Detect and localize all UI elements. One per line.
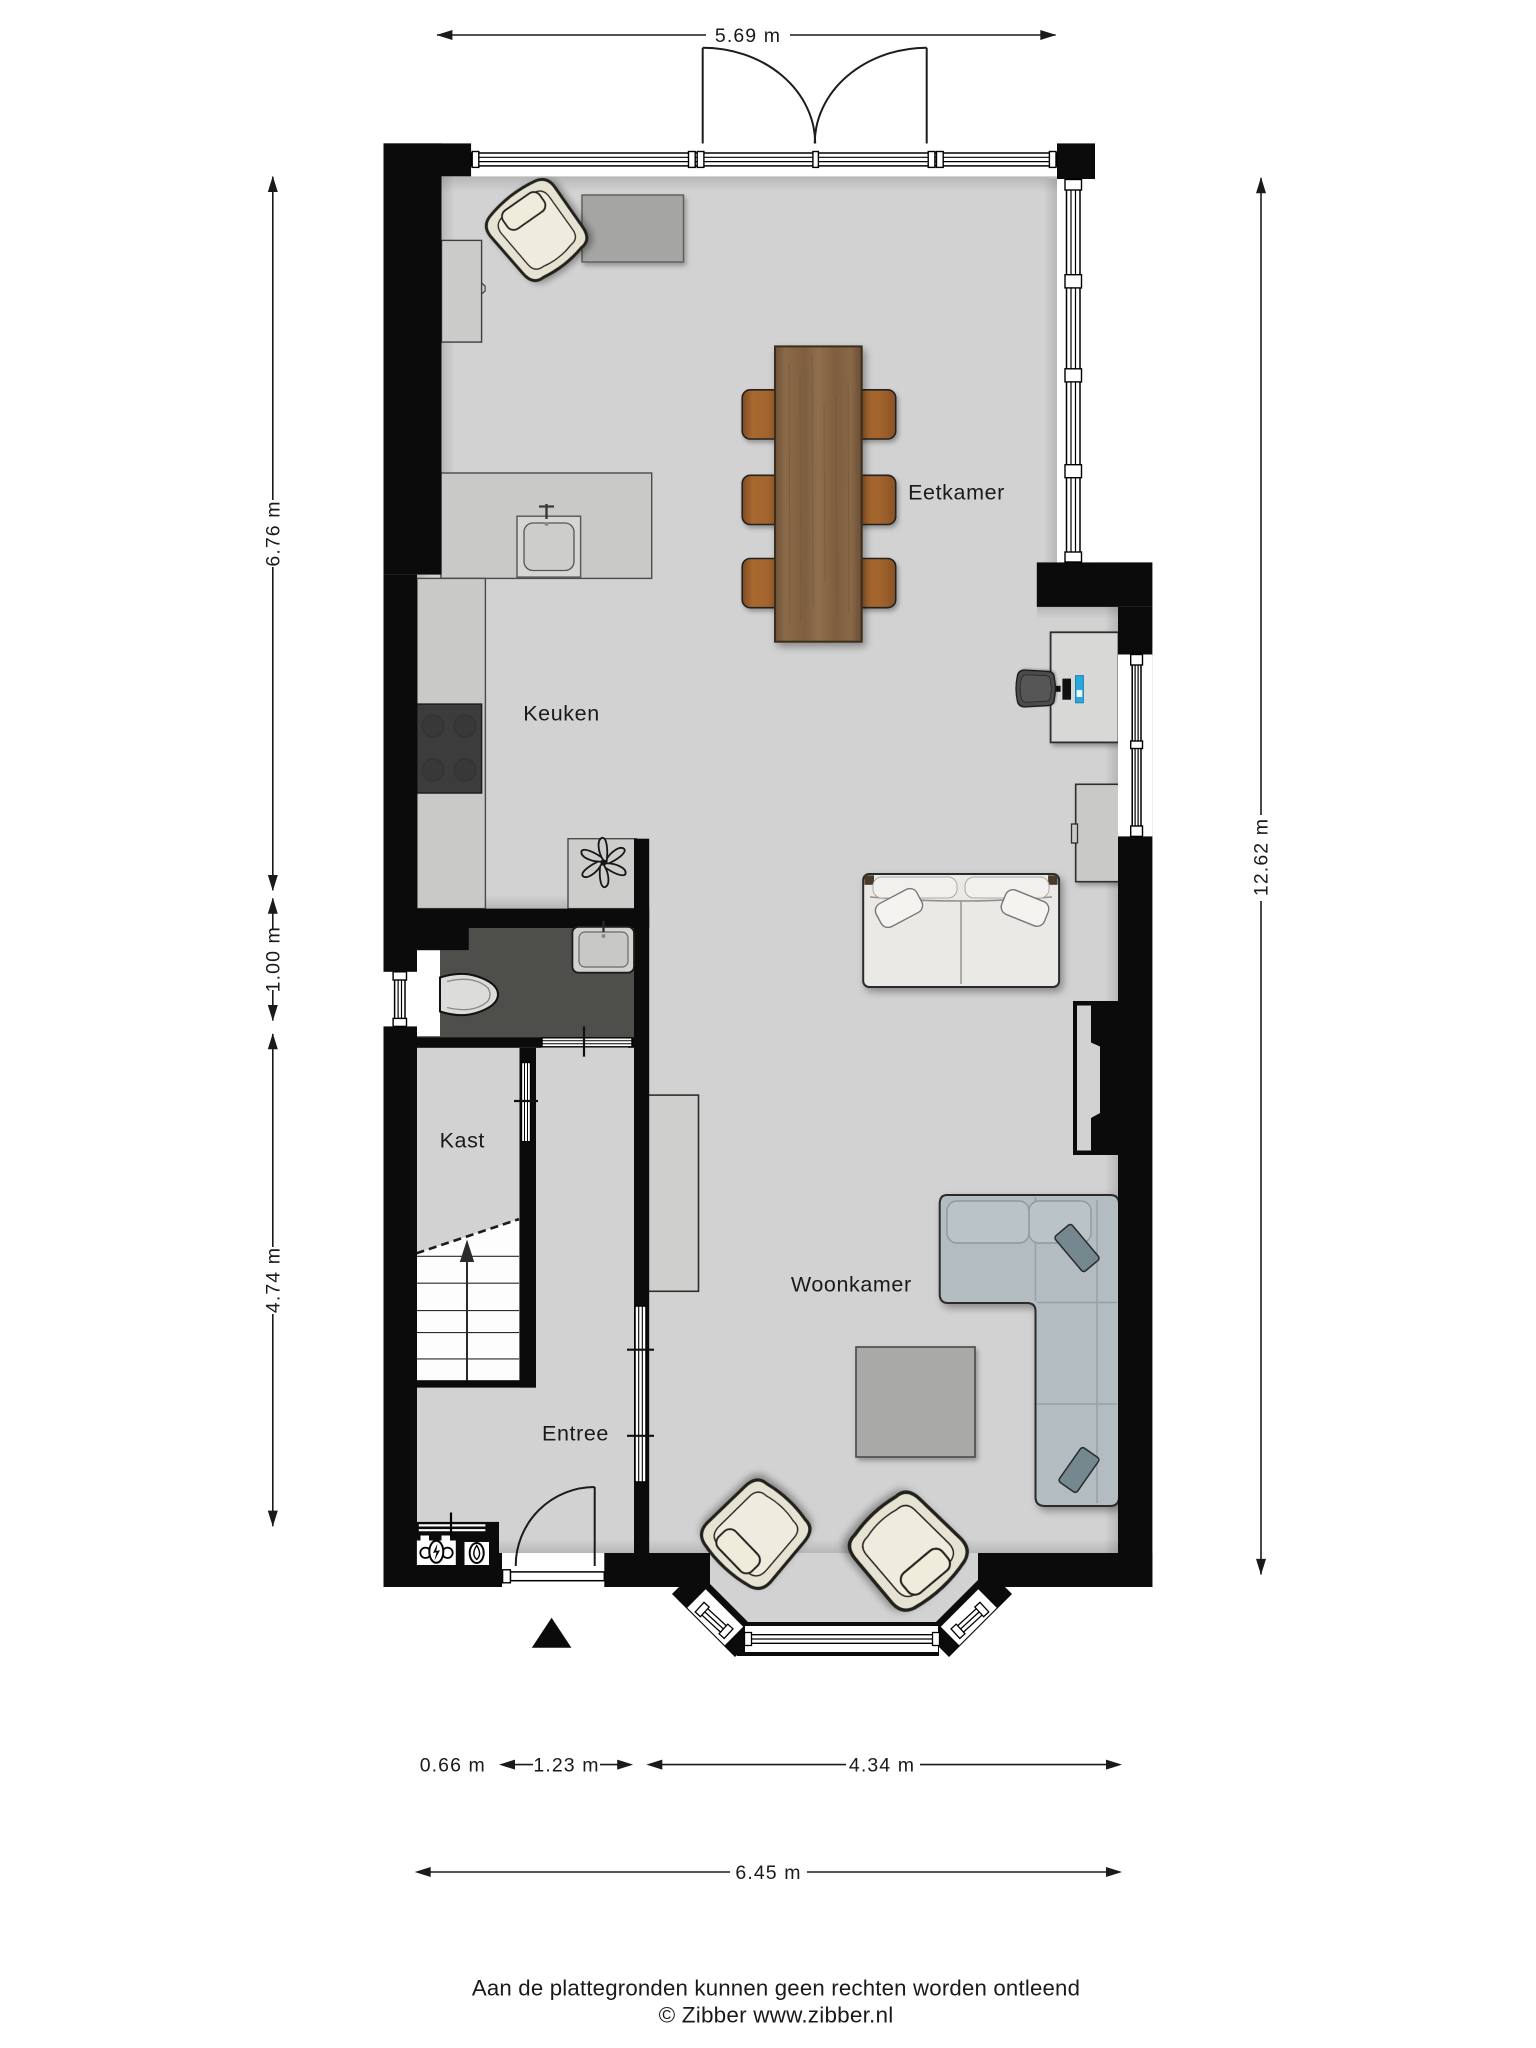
svg-text:4.74 m: 4.74 m	[262, 1247, 284, 1313]
svg-text:1.23 m: 1.23 m	[533, 1754, 599, 1776]
svg-text:Eetkamer: Eetkamer	[908, 481, 1005, 505]
svg-text:12.62 m: 12.62 m	[1251, 818, 1273, 896]
svg-text:1.00 m: 1.00 m	[262, 926, 284, 992]
svg-text:5.69 m: 5.69 m	[715, 25, 781, 47]
svg-text:6.76 m: 6.76 m	[262, 500, 284, 566]
svg-text:0.66 m: 0.66 m	[420, 1754, 486, 1776]
svg-text:Keuken: Keuken	[523, 701, 600, 725]
svg-text:Kast: Kast	[440, 1129, 485, 1153]
svg-text:© Zibber www.zibber.nl: © Zibber www.zibber.nl	[659, 2003, 894, 2028]
svg-text:Aan de plattegronden kunnen ge: Aan de plattegronden kunnen geen rechten…	[472, 1976, 1080, 2001]
svg-text:4.34 m: 4.34 m	[849, 1754, 915, 1776]
svg-text:Woonkamer: Woonkamer	[791, 1273, 912, 1297]
svg-text:Entree: Entree	[542, 1421, 609, 1445]
svg-text:6.45 m: 6.45 m	[735, 1862, 801, 1884]
